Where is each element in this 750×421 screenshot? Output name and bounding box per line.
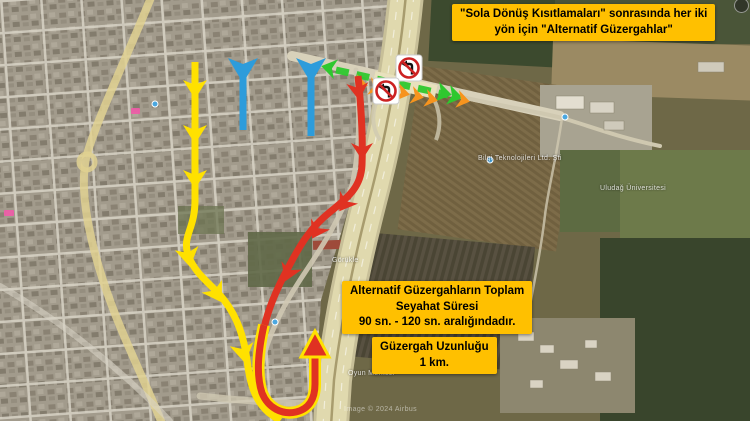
poi-marker-icon	[131, 108, 140, 114]
imagery-attribution: Image © 2024 Airbus	[344, 406, 417, 413]
map-label-gorukle: Görükle	[332, 257, 359, 264]
title-callout: "Sola Dönüş Kısıtlamaları" sonrasında he…	[452, 4, 715, 41]
travel-time-line-3: 90 sn. - 120 sn. aralığındadır.	[350, 315, 524, 331]
map-label-uludag-universitesi: Uludağ Üniversitesi	[600, 185, 666, 192]
travel-time-line-1: Alternatif Güzergahların Toplam	[350, 284, 524, 300]
satellite-map: Görükle Oyun Merkezi Bilgi Teknolojileri…	[0, 0, 750, 421]
route-length-line-2: 1 km.	[380, 356, 489, 372]
travel-time-callout: Alternatif Güzergahların Toplam Seyahat …	[342, 281, 532, 334]
no-left-turn-sign-1	[396, 55, 422, 81]
title-line-1: "Sola Dönüş Kısıtlamaları" sonrasında he…	[460, 7, 707, 23]
poi-pin-icon	[562, 114, 568, 120]
route-length-callout: Güzergah Uzunluğu 1 km.	[372, 337, 497, 374]
poi-pin-icon	[272, 319, 278, 325]
poi-pin-icon	[152, 101, 158, 107]
title-line-2: yön için "Alternatif Güzergahlar"	[460, 23, 707, 39]
poi-marker-icon	[4, 210, 14, 216]
travel-time-line-2: Seyahat Süresi	[350, 300, 524, 316]
route-length-line-1: Güzergah Uzunluğu	[380, 340, 489, 356]
map-label-bilgi-teknolojileri: Bilgi Teknolojileri Ltd. Şti	[478, 155, 562, 162]
no-left-turn-sign-2	[373, 78, 399, 104]
